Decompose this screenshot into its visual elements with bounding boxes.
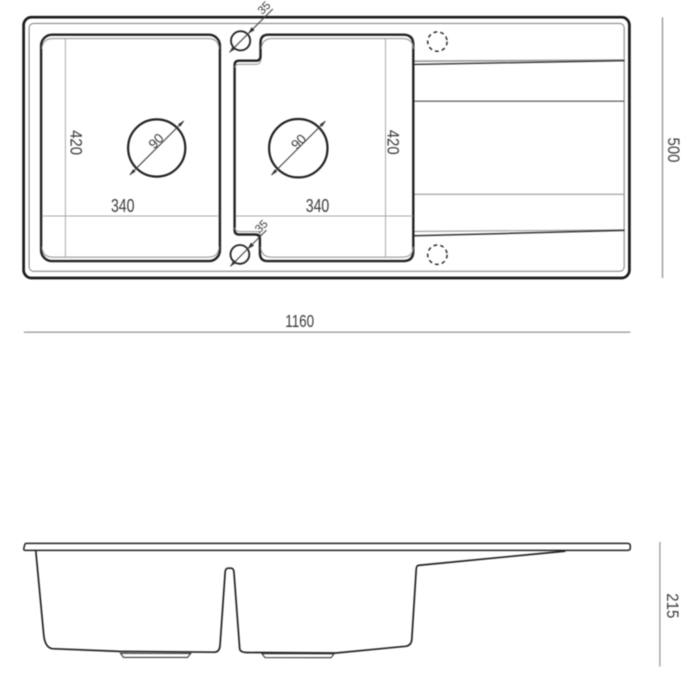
svg-text:420: 420 [66, 130, 85, 155]
svg-text:1160: 1160 [285, 311, 314, 331]
svg-text:340: 340 [306, 195, 330, 216]
svg-text:215: 215 [663, 593, 682, 618]
svg-text:340: 340 [111, 195, 135, 216]
svg-text:420: 420 [383, 130, 402, 155]
svg-text:500: 500 [664, 138, 683, 163]
